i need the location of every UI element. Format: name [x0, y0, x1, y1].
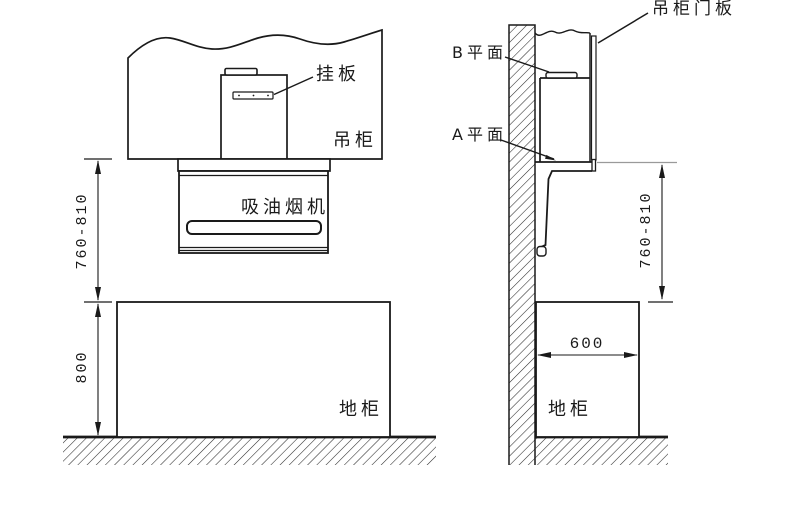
installation-diagram: 挂板 吊柜 吸油烟机 地柜 760-810 800: [0, 0, 790, 511]
plate-screw-hole: [267, 95, 269, 97]
range-hood-label: 吸油烟机: [241, 197, 329, 218]
dim-text-760-810-front: 760-810: [74, 192, 91, 269]
diagram-svg: 挂板 吊柜 吸油烟机 地柜 760-810 800: [0, 0, 790, 511]
arrow-down-icon: [659, 286, 665, 300]
arrow-up-icon: [95, 303, 101, 317]
wall-cabinet-label: 吊柜: [333, 130, 377, 151]
cabinet-broken-top-side: [535, 30, 590, 35]
hood-chimney-front: [221, 75, 287, 159]
plate-screw-hole: [253, 95, 255, 97]
plate-screw-hole: [238, 95, 240, 97]
hood-side-profile: [540, 171, 592, 248]
hood-top-flange: [178, 159, 330, 171]
dim-text-760-810-side: 760-810: [638, 191, 655, 268]
leader-arrow-icon: [545, 155, 556, 161]
wall-hatch: [509, 25, 535, 465]
mounting-bracket-b-plane: [546, 73, 577, 79]
door-panel-label: 吊柜门板: [652, 0, 736, 19]
base-cabinet-label-side: 地柜: [548, 399, 592, 420]
arrow-up-icon: [95, 160, 101, 174]
dim-text-800: 800: [74, 350, 91, 383]
hanging-plate-label: 挂板: [316, 64, 360, 85]
dim-text-600: 600: [570, 335, 605, 353]
arrow-down-icon: [95, 422, 101, 436]
floor-hatch-front: [63, 438, 436, 465]
hood-rear-foot: [537, 247, 546, 257]
hood-front-lip: [592, 160, 596, 172]
door-panel-leader-line: [598, 13, 648, 43]
hood-handle-slot: [187, 221, 321, 234]
arrow-down-icon: [95, 287, 101, 301]
arrow-up-icon: [659, 164, 665, 178]
base-cabinet-label-front: 地柜: [339, 399, 383, 420]
floor-hatch-side: [535, 438, 668, 465]
chimney-cap: [225, 69, 257, 76]
plane-b-label: B平面: [452, 43, 507, 62]
cabinet-door-panel: [592, 36, 597, 160]
plane-a-label: A平面: [452, 125, 507, 144]
